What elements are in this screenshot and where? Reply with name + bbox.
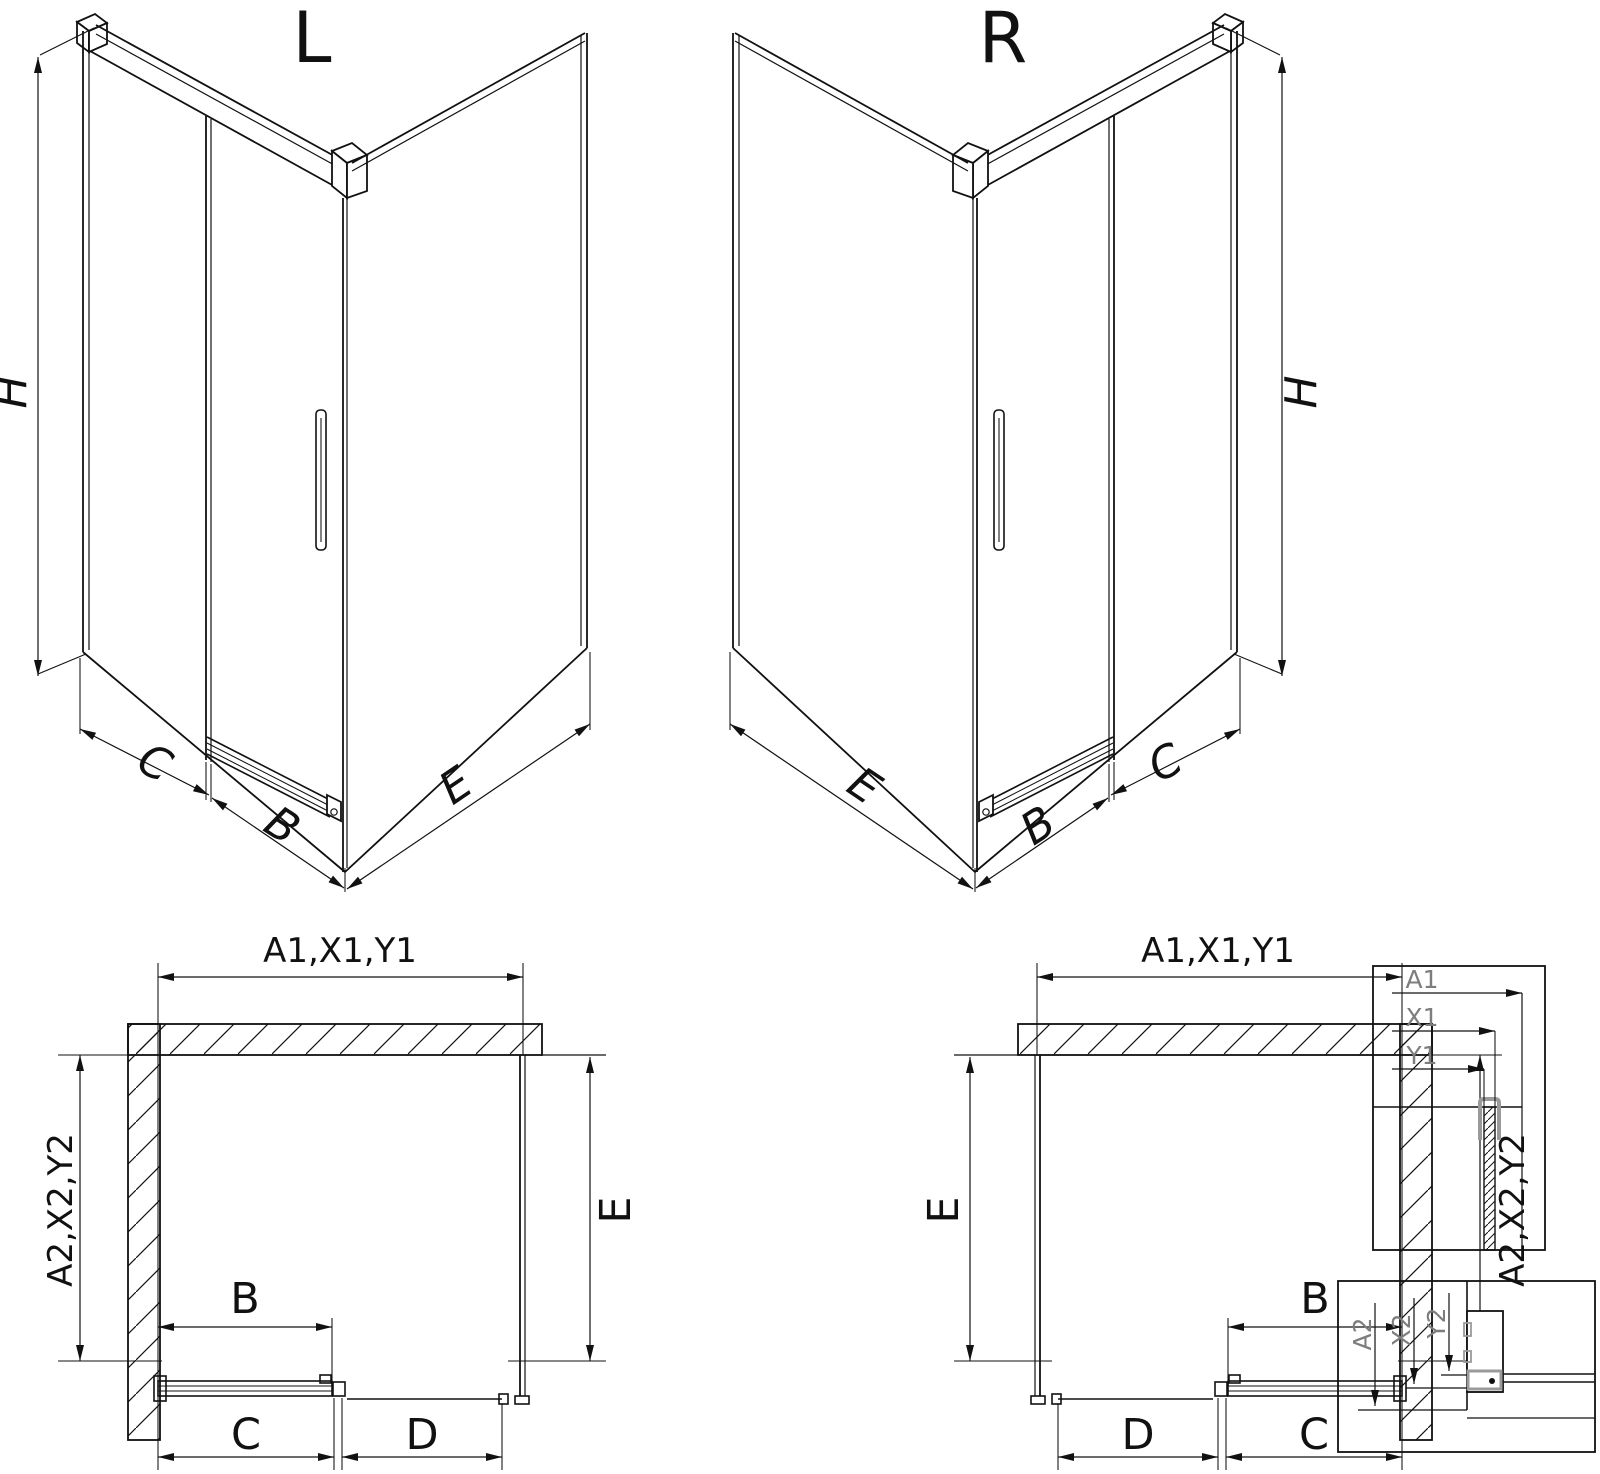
detail-label-y1: Y1 <box>1405 1041 1437 1070</box>
plan-left-depth-label: A2,X2,Y2 <box>41 1133 81 1287</box>
dim-label-h-right: H <box>1276 375 1327 408</box>
detail-label-y2: Y2 <box>1422 1307 1451 1339</box>
wall-hatch-side-left-plan <box>128 1024 160 1440</box>
plan-right-bottom-right-label: C <box>1299 1410 1329 1460</box>
plan-right-bottom-left-label: D <box>1121 1410 1154 1460</box>
plan-left-side-label: E <box>591 1196 641 1223</box>
variant-title-right: R <box>979 0 1028 79</box>
glass-section-hatched <box>1484 1107 1495 1250</box>
dim-label-h-left: H <box>0 375 37 408</box>
wall-hatch-side-right-plan <box>1400 1024 1432 1440</box>
detail-label-x1: X1 <box>1405 1003 1438 1032</box>
detail-label-a1: A1 <box>1405 965 1438 994</box>
wall-hatch-top-right-plan <box>1018 1024 1432 1055</box>
plan-left-bottom-left-label: C <box>231 1410 261 1460</box>
plan-left-bottom-right-label: D <box>405 1410 438 1460</box>
shower-enclosure-technical-drawing: L H C B E R H E B C A1,X1,Y1 A2,X2,Y2 B … <box>0 0 1600 1474</box>
plan-left-door-label: B <box>230 1274 260 1324</box>
variant-title-left: L <box>293 0 332 79</box>
drawing-canvas: L H C B E R H E B C A1,X1,Y1 A2,X2,Y2 B … <box>0 0 1600 1474</box>
plan-right-door-label: B <box>1300 1274 1330 1324</box>
plan-right-side-label: E <box>919 1196 969 1223</box>
roller-pin <box>1489 1378 1495 1384</box>
wall-hatch-top-left-plan <box>128 1024 542 1055</box>
page-background <box>0 0 1600 1474</box>
detail-label-a2: A2 <box>1348 1317 1377 1350</box>
plan-right-width-label: A1,X1,Y1 <box>1141 931 1295 971</box>
detail-label-x2: X2 <box>1387 1313 1416 1346</box>
plan-left-width-label: A1,X1,Y1 <box>263 931 417 971</box>
door-profile-section <box>1467 1311 1503 1392</box>
plan-right-depth-label: A2,X2,Y2 <box>1493 1133 1533 1287</box>
